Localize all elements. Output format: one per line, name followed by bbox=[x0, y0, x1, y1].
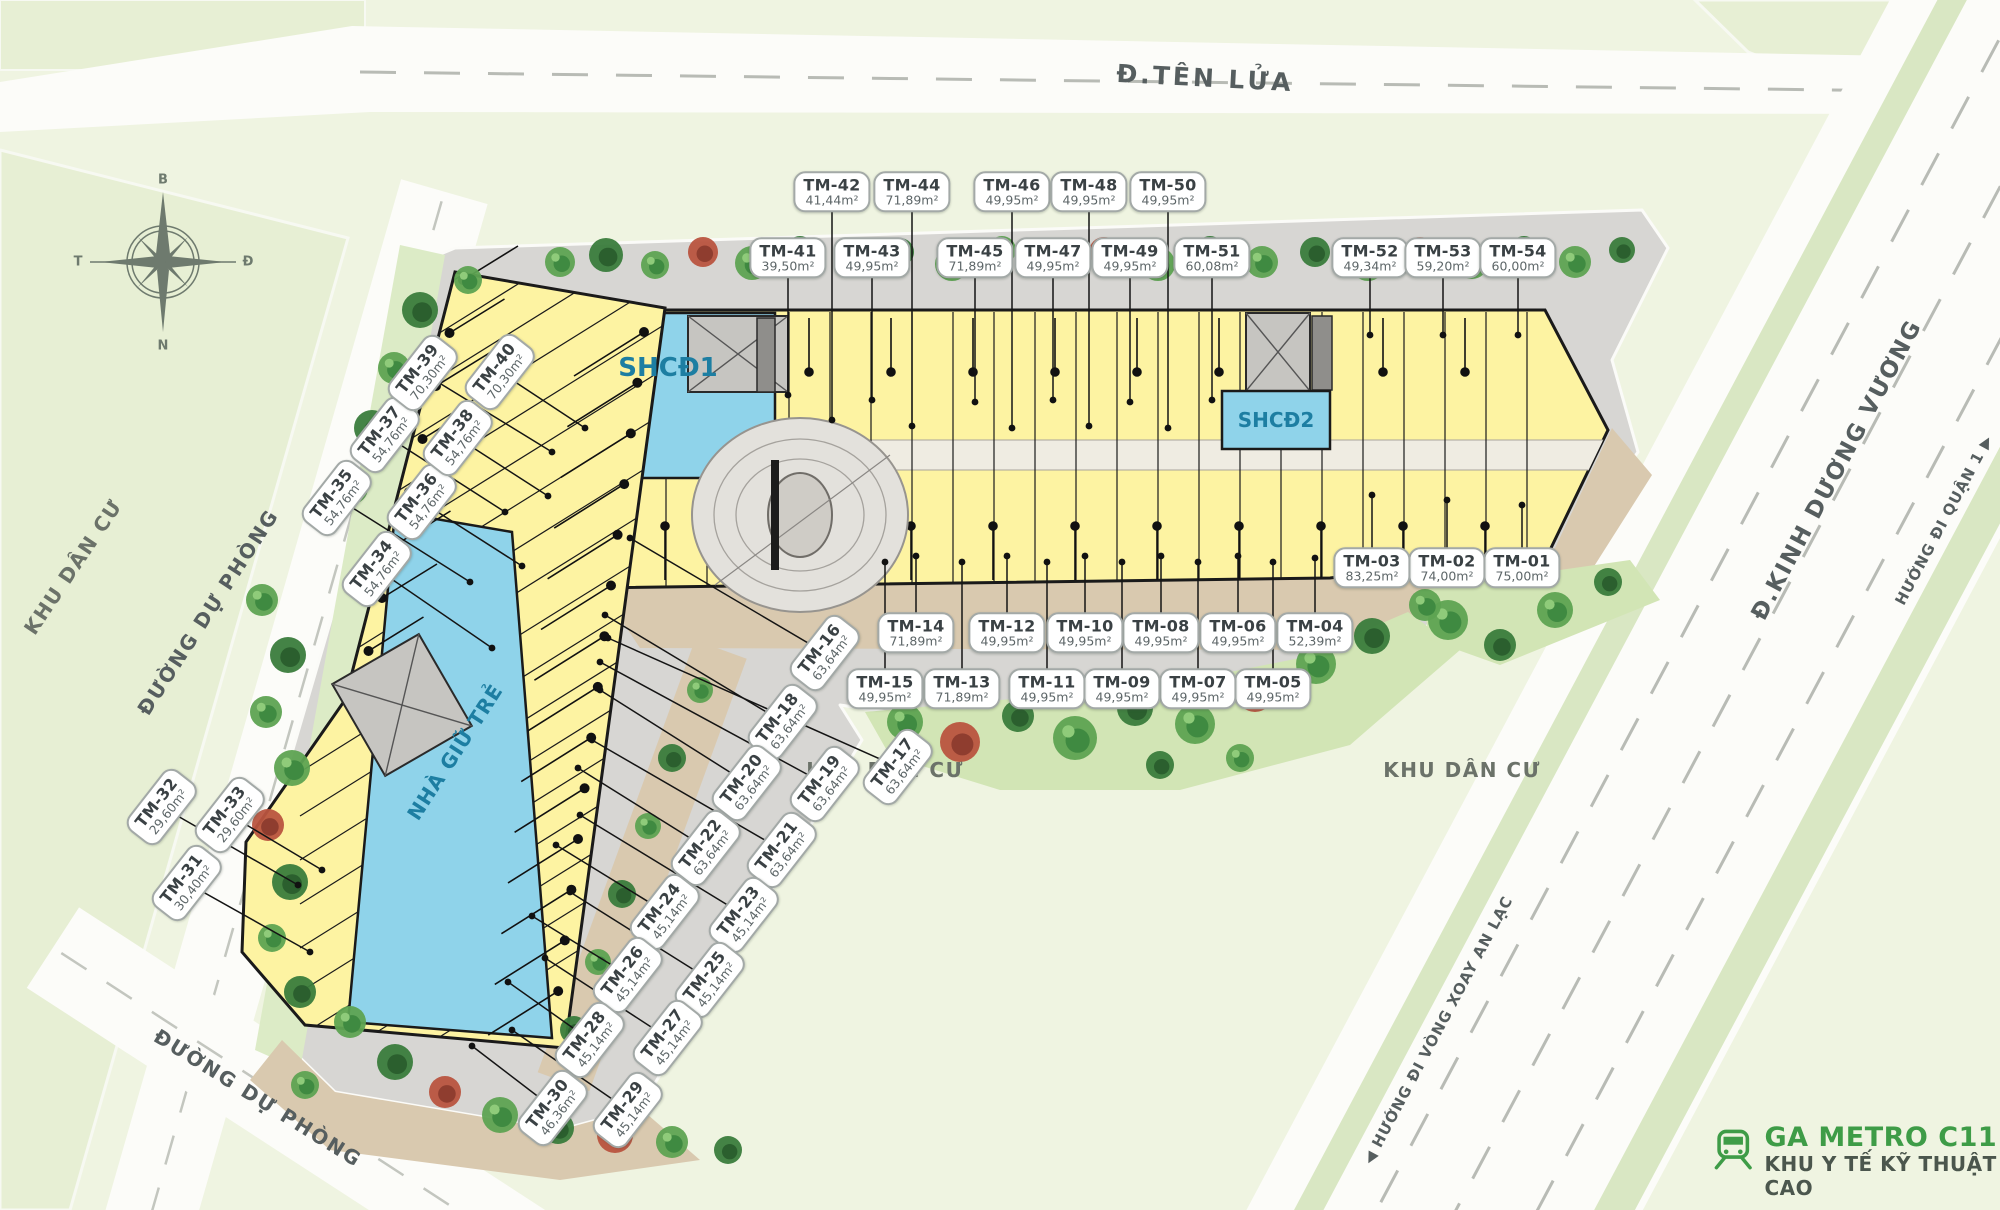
unit-area: 41,44m² bbox=[803, 194, 860, 207]
unit-label-tm-51: TM-5160,08m² bbox=[1173, 237, 1250, 278]
unit-label-tm-44: TM-4471,89m² bbox=[873, 171, 950, 212]
unit-area: 49,95m² bbox=[1060, 194, 1117, 207]
compass-north: B bbox=[158, 173, 168, 188]
metro-subtitle: KHU Y TẾ KỸ THUẬT CAO bbox=[1764, 1152, 2000, 1200]
unit-id: TM-43 bbox=[843, 242, 900, 259]
unit-id: TM-02 bbox=[1418, 552, 1475, 569]
unit-label-tm-01: TM-0175,00m² bbox=[1483, 547, 1560, 588]
unit-id: TM-09 bbox=[1093, 673, 1150, 690]
unit-id: TM-15 bbox=[856, 673, 913, 690]
unit-area: 49,95m² bbox=[856, 691, 913, 704]
unit-area: 49,95m² bbox=[1132, 635, 1189, 648]
unit-area: 71,89m² bbox=[933, 691, 990, 704]
unit-label-tm-04: TM-0452,39m² bbox=[1276, 612, 1353, 653]
unit-label-tm-09: TM-0949,95m² bbox=[1083, 668, 1160, 709]
unit-label-tm-45: TM-4571,89m² bbox=[936, 237, 1013, 278]
unit-id: TM-51 bbox=[1183, 242, 1240, 259]
unit-id: TM-04 bbox=[1286, 617, 1343, 634]
unit-id: TM-01 bbox=[1493, 552, 1550, 569]
unit-label-tm-48: TM-4849,95m² bbox=[1050, 171, 1127, 212]
unit-label-tm-03: TM-0383,25m² bbox=[1333, 547, 1410, 588]
unit-label-tm-05: TM-0549,95m² bbox=[1234, 668, 1311, 709]
compass-west: T bbox=[74, 255, 83, 270]
unit-area: 60,00m² bbox=[1489, 260, 1546, 273]
unit-area: 59,20m² bbox=[1414, 260, 1471, 273]
unit-label-tm-46: TM-4649,95m² bbox=[973, 171, 1050, 212]
unit-id: TM-03 bbox=[1343, 552, 1400, 569]
unit-label-tm-07: TM-0749,95m² bbox=[1159, 668, 1236, 709]
unit-area: 49,34m² bbox=[1341, 260, 1398, 273]
unit-id: TM-42 bbox=[803, 176, 860, 193]
site-plan: Đ.TÊN LỬA Đ.KINH DƯƠNG VƯƠNG HƯỚNG ĐI QU… bbox=[0, 0, 2000, 1210]
unit-label-tm-41: TM-4139,50m² bbox=[749, 237, 826, 278]
unit-label-tm-08: TM-0849,95m² bbox=[1122, 612, 1199, 653]
unit-area: 49,95m² bbox=[1244, 691, 1301, 704]
unit-id: TM-41 bbox=[759, 242, 816, 259]
unit-id: TM-54 bbox=[1489, 242, 1546, 259]
metro-train-icon bbox=[1712, 1124, 1754, 1176]
compass-east: Đ bbox=[243, 255, 254, 270]
compass-south: N bbox=[158, 339, 169, 354]
unit-id: TM-50 bbox=[1139, 176, 1196, 193]
unit-id: TM-44 bbox=[883, 176, 940, 193]
unit-label-tm-13: TM-1371,89m² bbox=[923, 668, 1000, 709]
unit-area: 49,95m² bbox=[1139, 194, 1196, 207]
unit-area: 49,95m² bbox=[1101, 260, 1158, 273]
unit-label-tm-54: TM-5460,00m² bbox=[1479, 237, 1556, 278]
unit-id: TM-12 bbox=[978, 617, 1035, 634]
unit-id: TM-14 bbox=[887, 617, 944, 634]
unit-id: TM-13 bbox=[933, 673, 990, 690]
metro-station-marker: GA METRO C11 KHU Y TẾ KỸ THUẬT CAO bbox=[1712, 1124, 2000, 1200]
unit-id: TM-53 bbox=[1414, 242, 1471, 259]
unit-area: 49,95m² bbox=[978, 635, 1035, 648]
unit-id: TM-05 bbox=[1244, 673, 1301, 690]
unit-label-tm-15: TM-1549,95m² bbox=[846, 668, 923, 709]
unit-area: 49,95m² bbox=[1209, 635, 1266, 648]
unit-id: TM-06 bbox=[1209, 617, 1266, 634]
unit-label-tm-53: TM-5359,20m² bbox=[1404, 237, 1481, 278]
parking-ramp bbox=[692, 418, 908, 612]
unit-area: 49,95m² bbox=[983, 194, 1040, 207]
unit-area: 60,08m² bbox=[1183, 260, 1240, 273]
unit-id: TM-52 bbox=[1341, 242, 1398, 259]
unit-id: TM-07 bbox=[1169, 673, 1226, 690]
unit-label-tm-49: TM-4949,95m² bbox=[1091, 237, 1168, 278]
unit-label-tm-10: TM-1049,95m² bbox=[1046, 612, 1123, 653]
unit-area: 49,95m² bbox=[1018, 691, 1075, 704]
unit-id: TM-45 bbox=[946, 242, 1003, 259]
unit-area: 49,95m² bbox=[1056, 635, 1113, 648]
unit-id: TM-11 bbox=[1018, 673, 1075, 690]
unit-label-tm-43: TM-4349,95m² bbox=[833, 237, 910, 278]
unit-id: TM-10 bbox=[1056, 617, 1113, 634]
unit-label-tm-52: TM-5249,34m² bbox=[1331, 237, 1408, 278]
unit-label-tm-47: TM-4749,95m² bbox=[1014, 237, 1091, 278]
unit-area: 71,89m² bbox=[887, 635, 944, 648]
zone-label-shcd2: SHCĐ2 bbox=[1238, 408, 1315, 432]
unit-area: 49,95m² bbox=[1169, 691, 1226, 704]
area-label-khu-dan-cu-right: KHU DÂN CƯ bbox=[1383, 758, 1541, 782]
unit-label-tm-06: TM-0649,95m² bbox=[1199, 612, 1276, 653]
unit-id: TM-47 bbox=[1024, 242, 1081, 259]
unit-area: 71,89m² bbox=[946, 260, 1003, 273]
road-ten-lua bbox=[0, 26, 2000, 132]
unit-label-tm-42: TM-4241,44m² bbox=[793, 171, 870, 212]
unit-area: 71,89m² bbox=[883, 194, 940, 207]
unit-label-tm-02: TM-0274,00m² bbox=[1408, 547, 1485, 588]
unit-id: TM-48 bbox=[1060, 176, 1117, 193]
unit-label-tm-14: TM-1471,89m² bbox=[877, 612, 954, 653]
unit-label-tm-50: TM-5049,95m² bbox=[1129, 171, 1206, 212]
unit-label-tm-11: TM-1149,95m² bbox=[1008, 668, 1085, 709]
unit-area: 49,95m² bbox=[843, 260, 900, 273]
unit-id: TM-46 bbox=[983, 176, 1040, 193]
unit-area: 39,50m² bbox=[759, 260, 816, 273]
unit-area: 49,95m² bbox=[1093, 691, 1150, 704]
unit-id: TM-49 bbox=[1101, 242, 1158, 259]
unit-area: 75,00m² bbox=[1493, 570, 1550, 583]
unit-id: TM-08 bbox=[1132, 617, 1189, 634]
unit-area: 83,25m² bbox=[1343, 570, 1400, 583]
metro-title: GA METRO C11 bbox=[1764, 1124, 2000, 1152]
unit-area: 52,39m² bbox=[1286, 635, 1343, 648]
unit-area: 74,00m² bbox=[1418, 570, 1475, 583]
unit-label-tm-12: TM-1249,95m² bbox=[968, 612, 1045, 653]
zone-label-shcd1: SHCĐ1 bbox=[618, 353, 717, 383]
unit-area: 49,95m² bbox=[1024, 260, 1081, 273]
